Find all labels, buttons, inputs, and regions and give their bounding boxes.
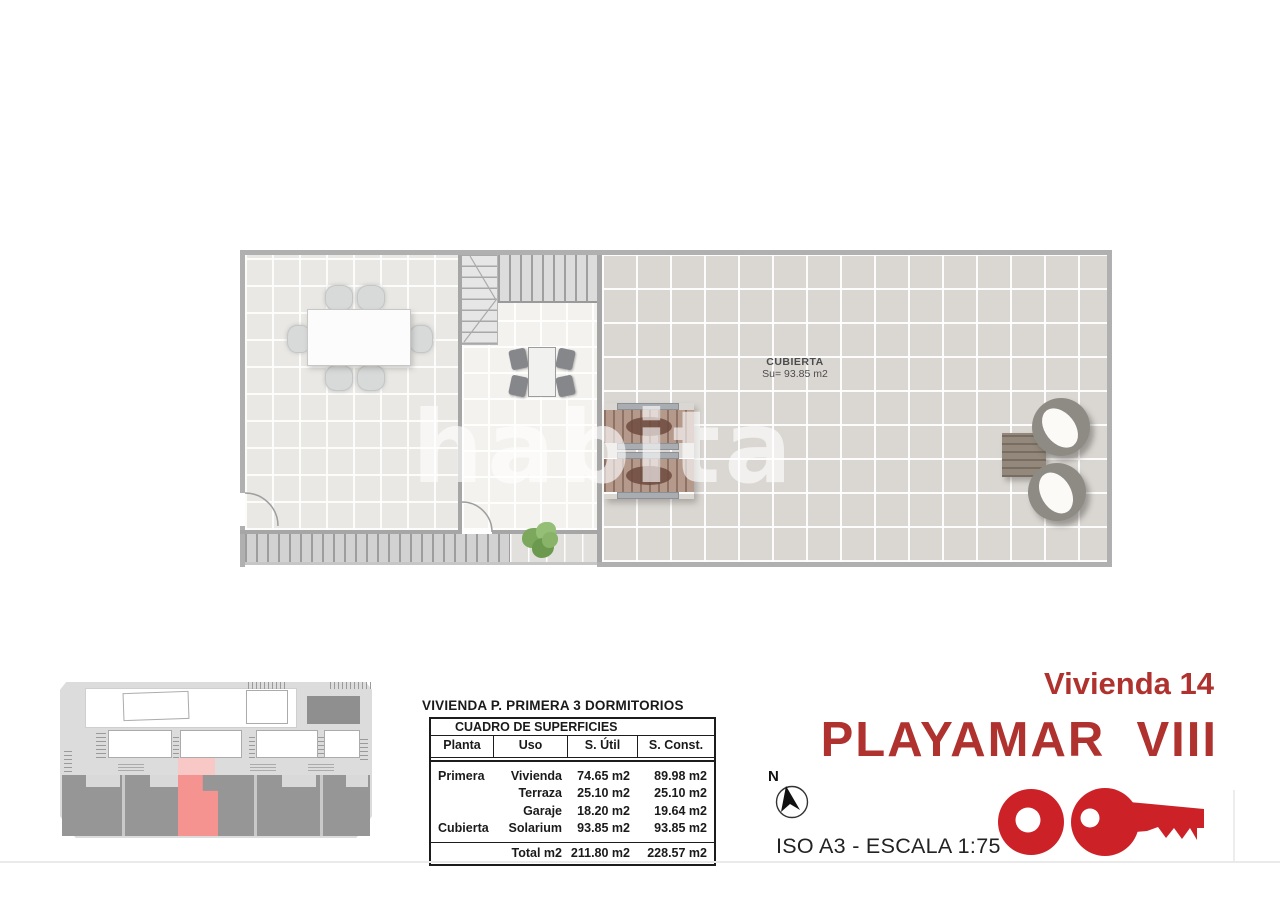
key-logo-icon xyxy=(995,782,1207,858)
site-plan-notch xyxy=(346,775,368,787)
watermark: habita xyxy=(412,398,796,498)
cell-planta: Cubierta xyxy=(431,820,493,838)
door-arc xyxy=(462,502,492,532)
highlighted-unit xyxy=(178,775,218,836)
cell-uso: Terraza xyxy=(493,785,567,803)
sheet: CUBIERTA Su= 93.85 m2 habita xyxy=(0,0,1280,904)
site-plan-roof xyxy=(246,690,288,724)
site-plan-stairs xyxy=(64,750,72,776)
site-plan-stairs xyxy=(96,732,106,758)
table-row: Terraza 25.10 m2 25.10 m2 xyxy=(431,785,714,803)
cell-sconst: 89.98 m2 xyxy=(637,768,714,786)
col-header-sconst: S. Const. xyxy=(637,736,714,757)
site-plan-roof xyxy=(123,691,190,721)
site-plan-lower-band xyxy=(62,775,370,836)
door-arc xyxy=(245,493,278,526)
site-plan-notch xyxy=(282,775,316,787)
site-location-plan xyxy=(60,682,372,838)
table-subtitle: CUADRO DE SUPERFICIES xyxy=(431,719,714,736)
surfaces-table: CUADRO DE SUPERFICIES Planta Uso S. Útil… xyxy=(429,717,716,866)
site-plan-unit xyxy=(108,730,172,758)
table-row: Cubierta Solarium 93.85 m2 93.85 m2 xyxy=(431,820,714,838)
scale-note: ISO A3 - ESCALA 1:75 xyxy=(776,834,1001,859)
room-name: CUBIERTA xyxy=(665,356,925,368)
site-plan-stairs xyxy=(318,734,324,758)
table-row: Primera Vivienda 74.65 m2 89.98 m2 xyxy=(431,768,714,786)
north-arrow-icon xyxy=(774,784,810,820)
unit-label: Vivienda 14 xyxy=(1044,666,1214,702)
table-body: Primera Vivienda 74.65 m2 89.98 m2 Terra… xyxy=(431,762,714,838)
site-plan-hatch xyxy=(248,682,288,689)
site-plan-tiny-text xyxy=(250,762,276,771)
cell-sconst: 19.64 m2 xyxy=(637,803,714,821)
table-row: Garaje 18.20 m2 19.64 m2 xyxy=(431,803,714,821)
site-plan-stairs xyxy=(173,734,179,758)
cell-planta: Primera xyxy=(431,768,493,786)
site-plan-tiny-text xyxy=(118,762,144,771)
site-plan-unit xyxy=(180,730,242,758)
site-plan-unit xyxy=(256,730,318,758)
cell-sconst: 25.10 m2 xyxy=(637,785,714,803)
room-label: CUBIERTA Su= 93.85 m2 xyxy=(665,356,925,380)
cell-uso: Vivienda xyxy=(493,768,567,786)
cell-uso: Solarium xyxy=(493,820,567,838)
cell-uso: Garaje xyxy=(493,803,567,821)
site-plan-separator xyxy=(122,775,125,836)
surfaces-block: VIVIENDA P. PRIMERA 3 DORMITORIOS CUADRO… xyxy=(422,698,722,866)
cell-sutil: 74.65 m2 xyxy=(567,768,637,786)
col-header-sutil: S. Útil xyxy=(567,736,637,757)
table-title: VIVIENDA P. PRIMERA 3 DORMITORIOS xyxy=(422,698,722,713)
site-plan-notch xyxy=(150,775,180,787)
cell-planta xyxy=(431,803,493,821)
cell-planta xyxy=(431,785,493,803)
cell-sutil: 18.20 m2 xyxy=(567,803,637,821)
cell-sutil: 25.10 m2 xyxy=(567,785,637,803)
site-plan-unit xyxy=(324,730,360,758)
site-plan-stairs xyxy=(249,734,255,758)
site-plan-separator xyxy=(254,775,257,836)
cell-sutil: 93.85 m2 xyxy=(567,820,637,838)
room-area: Su= 93.85 m2 xyxy=(665,368,925,380)
site-plan-stairs xyxy=(360,736,368,760)
site-plan-hatch xyxy=(330,682,372,689)
col-header-planta: Planta xyxy=(431,736,493,757)
compass-north-label: N xyxy=(768,768,779,785)
cell-sconst: 93.85 m2 xyxy=(637,820,714,838)
site-plan-block xyxy=(307,696,360,724)
table-header-row: Planta Uso S. Útil S. Const. xyxy=(431,736,714,758)
sheet-edge xyxy=(1233,790,1235,861)
site-plan-separator xyxy=(320,775,323,836)
stair-break-line xyxy=(464,256,496,342)
project-name: PLAYAMAR VIII xyxy=(821,712,1218,768)
highlighted-unit-terrace xyxy=(178,758,215,776)
site-plan-notch xyxy=(86,775,120,787)
sheet-edge xyxy=(0,861,1280,863)
site-plan-tiny-text xyxy=(308,762,334,771)
col-header-uso: Uso xyxy=(493,736,567,757)
